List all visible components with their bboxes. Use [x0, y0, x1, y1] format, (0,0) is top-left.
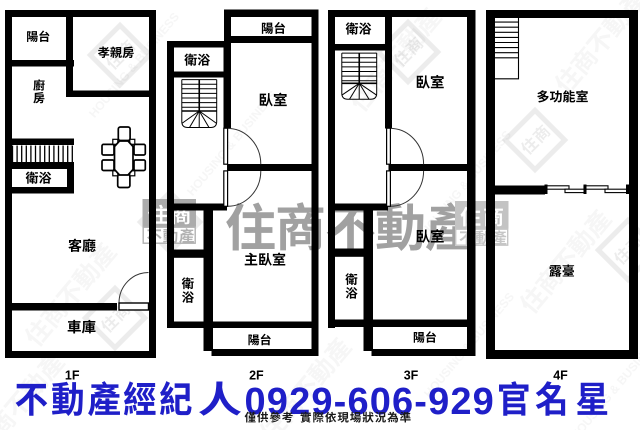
- svg-text:4F: 4F: [553, 369, 568, 383]
- svg-text:1F: 1F: [65, 369, 80, 383]
